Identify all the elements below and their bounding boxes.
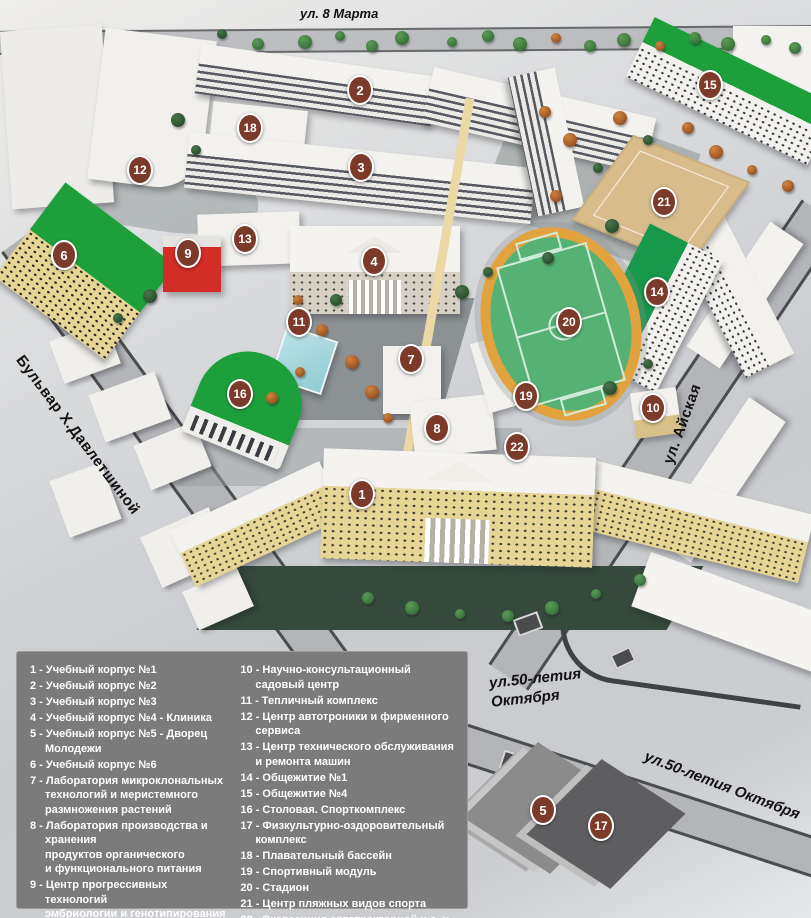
building-8-lab: [409, 394, 496, 458]
tree: [593, 163, 603, 173]
legend-item-18: 18 - Плавательный бассейн: [240, 849, 459, 864]
tree: [483, 267, 493, 277]
legend-item-7: 7 - Лаборатория микроклональныхтехнологи…: [30, 774, 232, 818]
tree: [316, 324, 328, 336]
tree: [550, 190, 562, 202]
tree: [405, 601, 419, 615]
tree: [721, 37, 735, 51]
tree: [655, 41, 665, 51]
tree: [143, 289, 157, 303]
columns: [349, 280, 401, 314]
tree: [502, 610, 514, 622]
legend-item-22: 22 - Экспозиция автотракторной и с.-х. т…: [240, 913, 459, 918]
tree: [584, 40, 596, 52]
lawn-strip: [197, 566, 704, 630]
columns: [424, 518, 489, 564]
tree: [365, 385, 379, 399]
map-marker-4: 4: [361, 246, 387, 276]
tree: [613, 111, 627, 125]
tree: [643, 135, 653, 145]
tree: [682, 122, 694, 134]
map-marker-5: 5: [530, 795, 556, 825]
legend-item-1: 1 - Учебный корпус №1: [30, 663, 232, 678]
tree: [542, 252, 554, 264]
tree: [447, 37, 457, 47]
tree: [709, 145, 723, 159]
map-marker-21: 21: [651, 187, 677, 217]
tree: [298, 35, 312, 49]
legend-item-14: 14 - Общежитие №1: [240, 771, 459, 786]
legend-item-13: 13 - Центр технического обслуживанияи ре…: [240, 740, 459, 769]
map-marker-1: 1: [349, 479, 375, 509]
map-marker-2: 2: [347, 75, 373, 105]
legend-item-8: 8 - Лаборатория производства и храненияп…: [30, 819, 232, 877]
legend-item-5: 5 - Учебный корпус №5 - Дворец Молодежи: [30, 727, 232, 756]
map-marker-10: 10: [640, 393, 666, 423]
map-marker-3: 3: [348, 152, 374, 182]
tree: [455, 285, 469, 299]
legend-item-4: 4 - Учебный корпус №4 - Клиника: [30, 711, 232, 726]
tree: [689, 32, 701, 44]
map-marker-13: 13: [232, 224, 258, 254]
tree: [634, 574, 646, 586]
map-marker-8: 8: [424, 413, 450, 443]
tree: [591, 589, 601, 599]
map-marker-20: 20: [556, 307, 582, 337]
legend-item-12: 12 - Центр автотроники и фирменного серв…: [240, 710, 459, 739]
tree: [605, 219, 619, 233]
tree: [345, 355, 359, 369]
tree: [366, 40, 378, 52]
map-marker-15: 15: [697, 70, 723, 100]
tree: [539, 106, 551, 118]
tree: [293, 295, 303, 305]
map-marker-19: 19: [513, 381, 539, 411]
tree: [782, 180, 794, 192]
map-marker-9: 9: [175, 238, 201, 268]
legend-item-16: 16 - Столовая. Спорткомплекс: [240, 803, 459, 818]
tree: [513, 37, 527, 51]
tree: [295, 367, 305, 377]
map-marker-16: 16: [227, 379, 253, 409]
tree: [643, 359, 653, 369]
tree: [335, 31, 345, 41]
legend-item-3: 3 - Учебный корпус №3: [30, 695, 232, 710]
legend-item-10: 10 - Научно-консультационный садовый цен…: [240, 663, 459, 692]
tree: [113, 313, 123, 323]
tree: [761, 35, 771, 45]
legend-item-15: 15 - Общежитие №4: [240, 787, 459, 802]
tree: [482, 30, 494, 42]
legend-column-left: 1 - Учебный корпус №12 - Учебный корпус …: [30, 663, 232, 900]
legend-item-11: 11 - Тепличный комплекс: [240, 694, 459, 709]
campus-model-map: 12345678910111213141516171819202122 ул. …: [0, 0, 811, 918]
map-marker-22: 22: [504, 432, 530, 462]
legend-item-9: 9 - Центр прогрессивных технологийэмбрио…: [30, 878, 232, 918]
tree: [789, 42, 801, 54]
map-marker-11: 11: [286, 307, 312, 337]
tree: [330, 294, 342, 306]
legend-item-17: 17 - Физкультурно-оздоровительный компле…: [240, 819, 459, 848]
map-marker-6: 6: [51, 240, 77, 270]
tree: [171, 113, 185, 127]
legend-item-6: 6 - Учебный корпус №6: [30, 758, 232, 773]
tree: [252, 38, 264, 50]
map-marker-14: 14: [644, 277, 670, 307]
tree: [455, 609, 465, 619]
tree: [617, 33, 631, 47]
tree: [545, 601, 559, 615]
street-label-8-marta: ул. 8 Марта: [300, 6, 378, 21]
legend-item-20: 20 - Стадион: [240, 881, 459, 896]
legend-item-21: 21 - Центр пляжных видов спорта: [240, 897, 459, 912]
tree: [383, 413, 393, 423]
map-marker-17: 17: [588, 811, 614, 841]
tree: [266, 392, 278, 404]
legend-item-2: 2 - Учебный корпус №2: [30, 679, 232, 694]
pediment: [425, 460, 494, 482]
map-marker-7: 7: [398, 344, 424, 374]
tree: [563, 133, 577, 147]
tree: [551, 33, 561, 43]
legend-item-19: 19 - Спортивный модуль: [240, 865, 459, 880]
tree: [217, 29, 227, 39]
map-marker-12: 12: [127, 155, 153, 185]
tree: [747, 165, 757, 175]
tree: [395, 31, 409, 45]
legend-panel: 1 - Учебный корпус №12 - Учебный корпус …: [16, 651, 468, 909]
tree: [191, 145, 201, 155]
tree: [603, 381, 617, 395]
map-marker-18: 18: [237, 113, 263, 143]
legend-column-right: 10 - Научно-консультационный садовый цен…: [240, 663, 459, 900]
tree: [362, 592, 374, 604]
